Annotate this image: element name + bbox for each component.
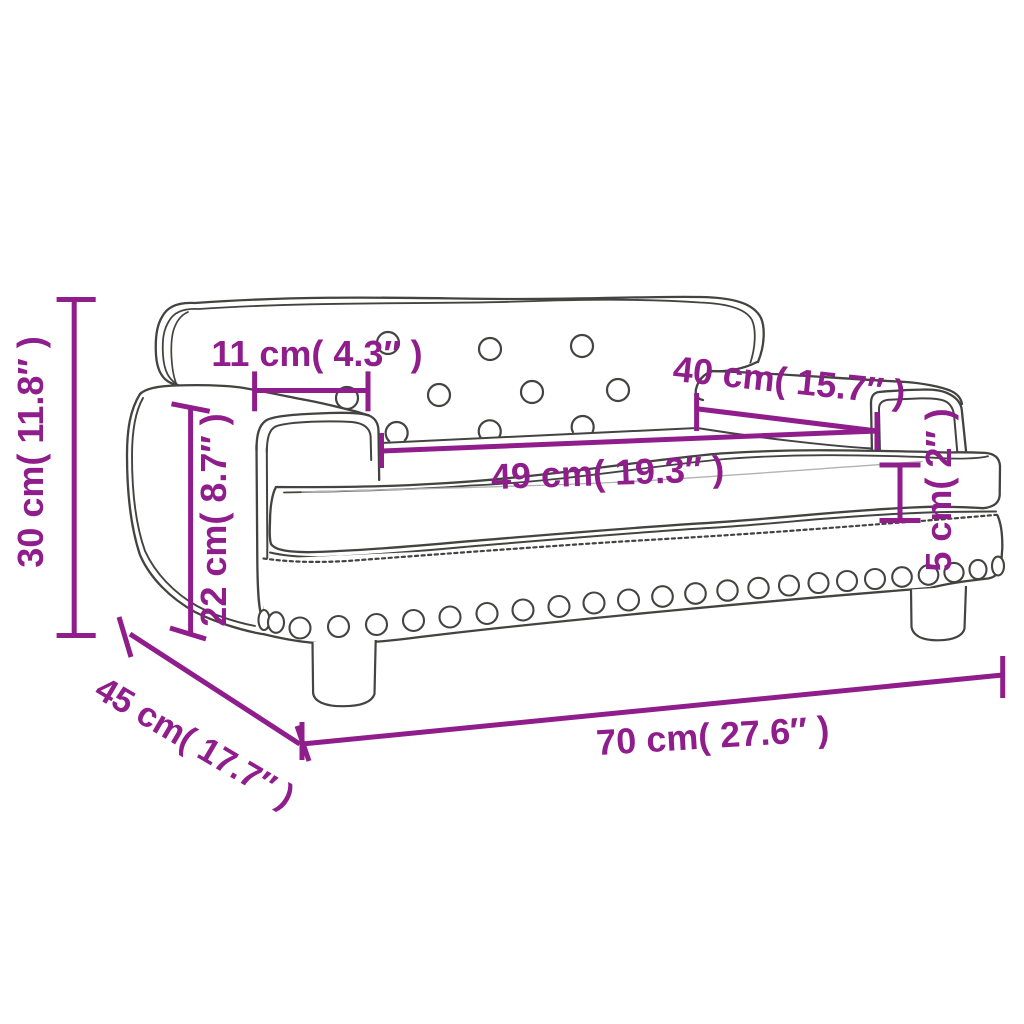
svg-text:49 cm( 19.3″ ): 49 cm( 19.3″ )	[490, 448, 725, 497]
svg-text:5 cm( 2″ ): 5 cm( 2″ )	[918, 408, 959, 571]
svg-text:11 cm( 4.3″ ): 11 cm( 4.3″ )	[211, 333, 422, 374]
svg-text:22 cm( 8.7″ ): 22 cm( 8.7″ )	[193, 413, 234, 626]
svg-text:30 cm( 11.8″ ): 30 cm( 11.8″ )	[10, 336, 51, 567]
